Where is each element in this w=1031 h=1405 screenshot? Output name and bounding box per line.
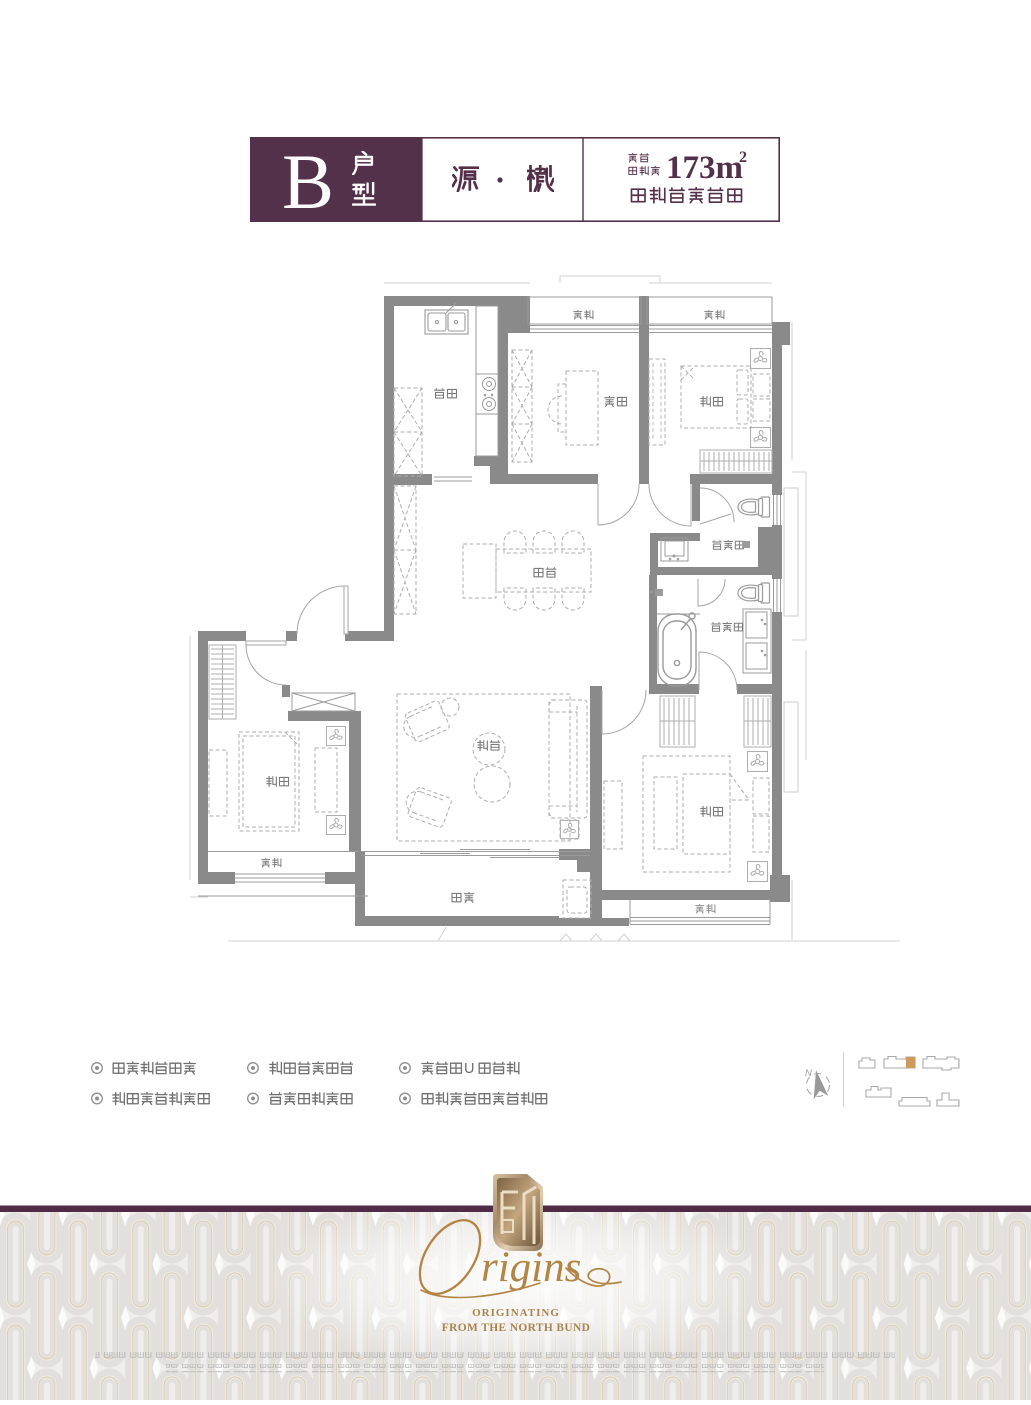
svg-text:rigins: rigins <box>481 1244 581 1291</box>
svg-text:2: 2 <box>739 149 747 166</box>
svg-text:B: B <box>282 138 334 225</box>
svg-text:ORIGINATING: ORIGINATING <box>472 1307 560 1319</box>
svg-text:FROM THE NORTH BUND: FROM THE NORTH BUND <box>442 1322 590 1334</box>
svg-text:N: N <box>805 1068 812 1079</box>
svg-text:173m: 173m <box>666 150 743 186</box>
svg-text:U: U <box>464 1061 474 1077</box>
